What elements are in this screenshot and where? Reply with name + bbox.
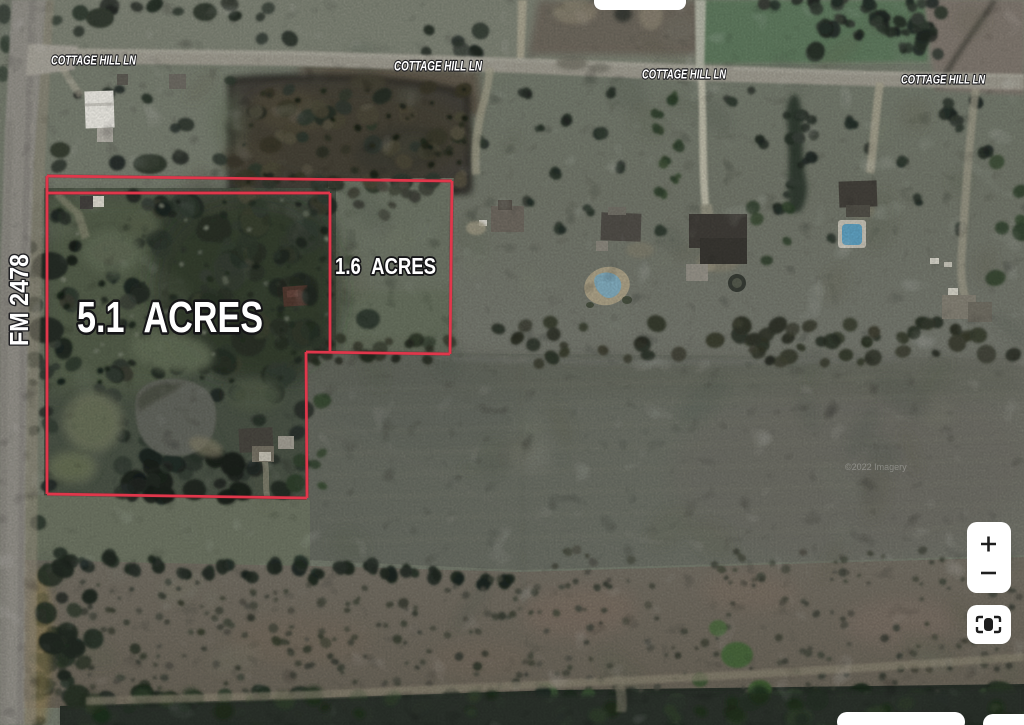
svg-text:1.6 ACRES: 1.6 ACRES <box>335 253 436 279</box>
svg-text:COTTAGE HILL LN: COTTAGE HILL LN <box>51 54 137 68</box>
svg-text:©2022 Imagery: ©2022 Imagery <box>845 462 907 472</box>
svg-text:5.1 ACRES: 5.1 ACRES <box>77 293 263 342</box>
svg-text:COTTAGE HILL LN: COTTAGE HILL LN <box>394 59 482 74</box>
svg-text:COTTAGE HILL LN: COTTAGE HILL LN <box>642 67 726 82</box>
svg-text:COTTAGE HILL LN: COTTAGE HILL LN <box>901 73 985 87</box>
svg-text:FM 2478: FM 2478 <box>4 254 34 346</box>
